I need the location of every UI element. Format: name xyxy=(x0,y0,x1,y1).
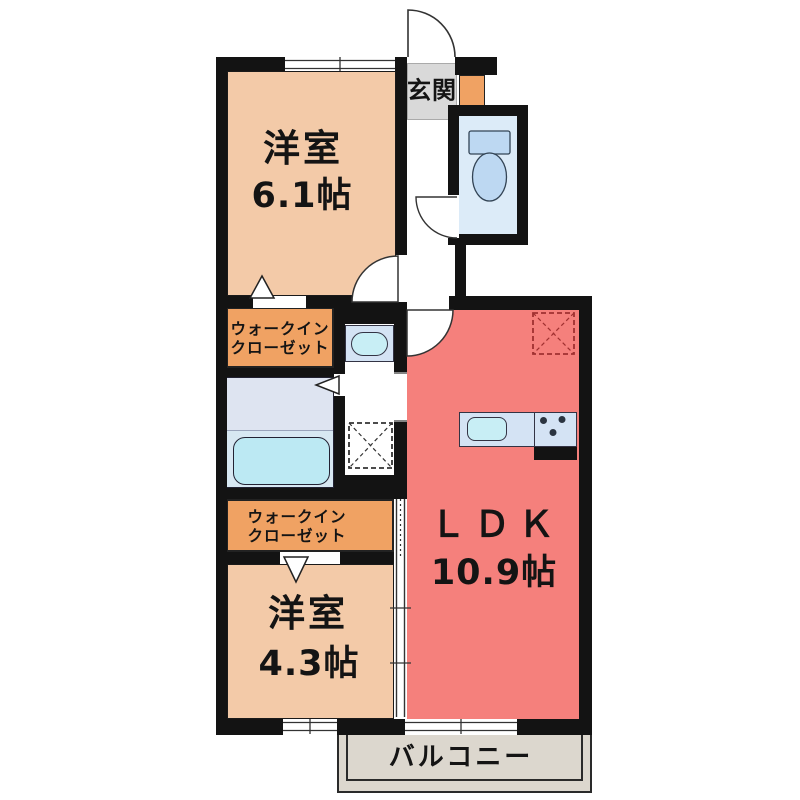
opening-closet1-door xyxy=(253,296,306,308)
entrance-door-arc xyxy=(408,10,455,57)
wall-bottom-a xyxy=(216,719,283,735)
wall-bath-top xyxy=(216,368,334,377)
wall-bottom-b xyxy=(517,719,592,735)
washing-machine-x xyxy=(349,423,392,468)
floor-plan: 洋室 6.1帖 ウォークイン クローゼット ウォークイン クローゼット 洋室 4… xyxy=(0,0,800,800)
wall-bath-bottom xyxy=(216,488,334,499)
wall-closet2-top xyxy=(334,475,407,499)
wall-left-outer xyxy=(216,57,227,735)
wall-top-right xyxy=(455,57,497,75)
closet2-label-line1: ウォークイン xyxy=(247,507,346,527)
wall-right-outer xyxy=(579,296,592,735)
ldk-size: 10.9帖 xyxy=(431,552,557,594)
entrance-label: 玄関 xyxy=(407,77,457,106)
wall-washroom-left xyxy=(334,324,345,497)
kitchen-wall-stub xyxy=(534,447,577,460)
wall-bottom-corner xyxy=(337,719,405,735)
sliding-partition xyxy=(394,499,407,719)
washbasin-bowl xyxy=(351,332,388,356)
opening-toilet-door xyxy=(448,195,459,238)
balcony-label: バルコニー xyxy=(389,742,533,773)
opening-bedroom-top-door xyxy=(396,255,407,302)
bedroom-bottom-name: 洋室 xyxy=(268,592,348,636)
ldk-name: ＬＤＫ xyxy=(430,503,562,546)
opening-washroom-door xyxy=(394,372,407,422)
bathtub xyxy=(233,437,330,485)
washing-machine-space xyxy=(349,423,392,468)
wall-washroom-right-upper xyxy=(394,324,407,372)
bedroom-bottom-area xyxy=(227,564,394,719)
opening-closet2-door xyxy=(280,552,340,564)
bedroom-top-size: 6.1帖 xyxy=(251,175,352,217)
bedroom-bottom-size: 4.3帖 xyxy=(258,643,359,685)
stove-section xyxy=(534,412,577,447)
closet1-label-line2: クローゼット xyxy=(230,338,329,358)
wall-hall-right-lower xyxy=(455,245,466,302)
washing-machine-x xyxy=(349,423,392,468)
wall-ldk-top xyxy=(449,296,592,310)
closet2-label-line2: クローゼット xyxy=(247,526,346,546)
window-ldk-balcony xyxy=(405,719,517,735)
closet1-label-line1: ウォークイン xyxy=(230,319,329,339)
opening-bath-door xyxy=(334,374,345,396)
toilet-room-floor xyxy=(459,116,517,234)
bedroom-top-name: 洋室 xyxy=(263,127,343,171)
window-bedroom-top xyxy=(285,57,395,71)
kitchen-sink xyxy=(467,417,507,441)
window-bedroom-bottom xyxy=(283,719,337,735)
